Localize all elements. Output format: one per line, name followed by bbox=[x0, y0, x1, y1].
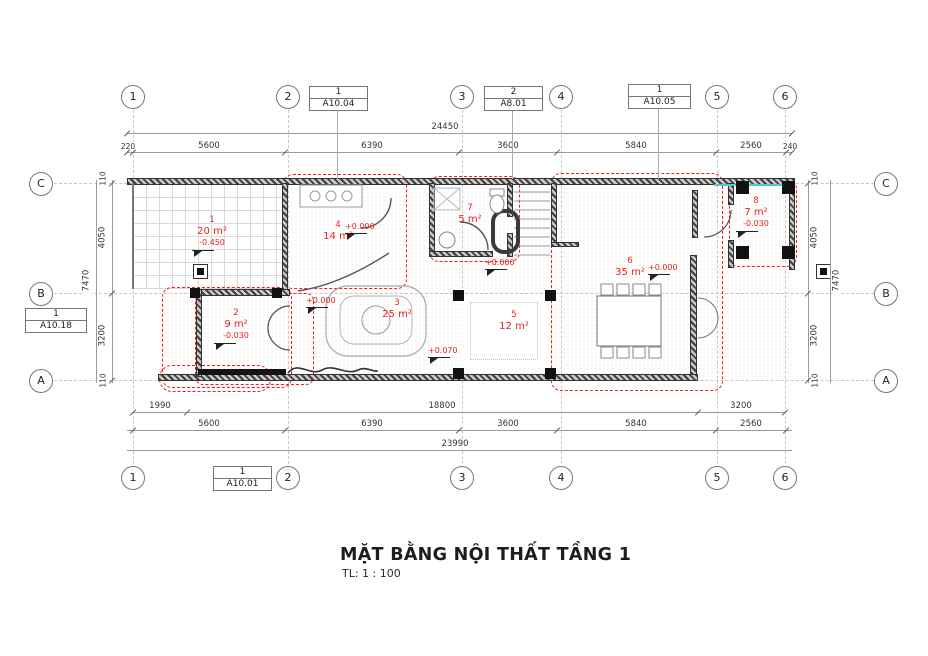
drawing-scale: TL: 1 : 100 bbox=[342, 567, 401, 580]
level-value: +0.000 bbox=[306, 296, 336, 305]
grid-bubble-bottom-1: 1 bbox=[121, 466, 145, 490]
level-flag-icon bbox=[485, 269, 507, 270]
room-area: 9 m² bbox=[206, 319, 266, 330]
level-marker-room4: +0.000 bbox=[345, 222, 375, 234]
dim-line-left-segments bbox=[112, 180, 113, 383]
dim-b1-2: 3200 bbox=[728, 402, 754, 411]
room-level: -0.030 bbox=[726, 218, 786, 229]
grid-bubble-left-A: A bbox=[29, 369, 53, 393]
room-area: 12 m² bbox=[484, 321, 544, 332]
grid-bubble-bottom-2: 2 bbox=[276, 466, 300, 490]
level-flag-icon bbox=[214, 343, 236, 344]
dim-b1-0: 1990 bbox=[147, 402, 173, 411]
grid-label: 5 bbox=[714, 471, 721, 484]
dim-line-left-total bbox=[96, 180, 97, 383]
dim-right-2: 3200 bbox=[811, 321, 820, 351]
dim-right-3: 110 bbox=[811, 366, 820, 396]
dim-left-0: 110 bbox=[99, 164, 108, 194]
grid-label: 4 bbox=[558, 471, 565, 484]
grid-label: 3 bbox=[459, 90, 466, 103]
grid-label: B bbox=[37, 287, 45, 300]
room-label-2: 2 9 m² -0.030 bbox=[206, 308, 266, 344]
room-label-8: 8 7 m² -0.030 bbox=[726, 196, 786, 232]
door-arc-hall bbox=[298, 253, 389, 291]
room-number: 5 bbox=[484, 310, 544, 321]
level-value: +0.000 bbox=[485, 258, 515, 267]
grid-bubble-top-6: 6 bbox=[773, 85, 797, 109]
callout-number: 2 bbox=[485, 87, 542, 99]
dim-line-bottom-total bbox=[127, 450, 792, 451]
door-arc-room6-a bbox=[698, 298, 718, 318]
grid-bubble-left-C: C bbox=[29, 172, 53, 196]
sink-fixture bbox=[439, 232, 455, 248]
grid-bubble-top-1: 1 bbox=[121, 85, 145, 109]
level-flag-icon bbox=[192, 250, 214, 251]
callout-sheet: A8.01 bbox=[485, 99, 542, 110]
dim-b1-1: 18800 bbox=[426, 402, 457, 411]
level-marker-stairhall: +0.000 bbox=[485, 258, 515, 270]
callout-A10-05: 1 A10.05 bbox=[628, 84, 691, 109]
room-area: 25 m² bbox=[367, 309, 427, 320]
dim-left-3: 110 bbox=[99, 366, 108, 396]
callout-number: 1 bbox=[629, 85, 690, 97]
callout-leader bbox=[658, 108, 659, 179]
level-flag-icon bbox=[648, 274, 670, 275]
door-arc-bath bbox=[460, 222, 488, 250]
grid-bubble-bottom-6: 6 bbox=[773, 466, 797, 490]
room-label-7: 7 5 m² bbox=[440, 203, 500, 225]
dim-top-2: 6390 bbox=[359, 142, 385, 151]
room-number: 3 bbox=[367, 298, 427, 309]
dim-line-bottom-row1 bbox=[133, 412, 785, 413]
grid-label: B bbox=[882, 287, 890, 300]
dim-bottom-total: 23990 bbox=[439, 440, 470, 449]
dining-table bbox=[597, 296, 661, 346]
callout-A8-01: 2 A8.01 bbox=[484, 86, 543, 111]
room-label-5: 5 12 m² bbox=[484, 310, 544, 332]
dim-right-total: 7470 bbox=[833, 266, 842, 296]
dim-b2-1: 6390 bbox=[359, 420, 385, 429]
level-flag-icon bbox=[736, 231, 758, 232]
grid-bubble-right-B: B bbox=[874, 282, 898, 306]
room-number: 8 bbox=[726, 196, 786, 207]
dim-left-2: 3200 bbox=[99, 321, 108, 351]
callout-sheet: A10.05 bbox=[629, 97, 690, 108]
grid-label: C bbox=[882, 177, 890, 190]
callout-number: 1 bbox=[310, 87, 367, 99]
grid-label: A bbox=[882, 374, 890, 387]
grid-label: 6 bbox=[782, 471, 789, 484]
grid-bubble-top-5: 5 bbox=[705, 85, 729, 109]
dim-top-5: 2560 bbox=[738, 142, 764, 151]
dim-left-1: 4050 bbox=[99, 223, 108, 253]
grid-label: 2 bbox=[285, 471, 292, 484]
room-area: 5 m² bbox=[440, 214, 500, 225]
grid-bubble-bottom-5: 5 bbox=[705, 466, 729, 490]
dim-b2-3: 5840 bbox=[623, 420, 649, 429]
callout-leader bbox=[512, 110, 513, 179]
grid-label: 4 bbox=[558, 90, 565, 103]
level-marker-room6: +0.000 bbox=[648, 263, 678, 275]
level-flag-icon bbox=[428, 357, 450, 358]
callout-leader bbox=[337, 110, 338, 179]
drawing-title: MẶT BẰNG NỘI THẤT TẦNG 1 bbox=[340, 545, 631, 565]
garden-edge-wave bbox=[288, 368, 378, 373]
callout-sheet: A10.01 bbox=[214, 479, 271, 490]
callout-A10-18: 1 A10.18 bbox=[25, 308, 87, 333]
grid-bubble-left-B: B bbox=[29, 282, 53, 306]
room-area: 20 m² bbox=[182, 226, 242, 237]
room-level: -0.450 bbox=[182, 237, 242, 248]
room-number: 2 bbox=[206, 308, 266, 319]
callout-sheet: A10.04 bbox=[310, 99, 367, 110]
level-marker-room3-bottom: +0.070 bbox=[428, 346, 458, 358]
grid-bubble-right-A: A bbox=[874, 369, 898, 393]
level-value: +0.000 bbox=[345, 222, 375, 231]
grid-label: A bbox=[37, 374, 45, 387]
dim-line-top-total bbox=[127, 133, 792, 134]
dim-top-4: 5840 bbox=[623, 142, 649, 151]
door-arc-room2-a bbox=[268, 306, 290, 328]
grid-label: 3 bbox=[459, 471, 466, 484]
callout-A10-04: 1 A10.04 bbox=[309, 86, 368, 111]
grid-bubble-top-4: 4 bbox=[549, 85, 573, 109]
door-arc-room6-b bbox=[698, 318, 718, 338]
dim-top-total: 24450 bbox=[429, 123, 460, 132]
room-level: -0.030 bbox=[206, 330, 266, 341]
dim-right-1: 4050 bbox=[811, 223, 820, 253]
room-area: 7 m² bbox=[726, 207, 786, 218]
dim-right-0: 110 bbox=[811, 164, 820, 194]
grid-label: C bbox=[37, 177, 45, 190]
dim-top-6: 240 bbox=[781, 142, 799, 151]
floor-plan-sheet: 1 20 m² -0.450 2 9 m² -0.030 3 25 m² 4 1… bbox=[0, 0, 928, 656]
grid-bubble-top-3: 3 bbox=[450, 85, 474, 109]
level-flag-icon bbox=[306, 307, 328, 308]
callout-sheet: A10.18 bbox=[26, 321, 86, 332]
dim-b2-0: 5600 bbox=[196, 420, 222, 429]
sideboard-room4 bbox=[300, 185, 362, 207]
callout-number: 1 bbox=[214, 467, 271, 479]
callout-number: 1 bbox=[26, 309, 86, 321]
grid-label: 1 bbox=[130, 471, 137, 484]
dim-left-total: 7470 bbox=[83, 266, 92, 296]
level-flag-icon bbox=[345, 233, 367, 234]
dim-b2-2: 3600 bbox=[495, 420, 521, 429]
level-marker-room3-left: +0.000 bbox=[306, 296, 336, 308]
room-label-3: 3 25 m² bbox=[367, 298, 427, 320]
grid-label: 1 bbox=[130, 90, 137, 103]
dim-line-right-segments bbox=[808, 180, 809, 383]
grid-bubble-right-C: C bbox=[874, 172, 898, 196]
level-value: +0.070 bbox=[428, 346, 458, 355]
level-value: +0.000 bbox=[648, 263, 678, 272]
door-arc-room2-b bbox=[268, 328, 290, 350]
grid-bubble-bottom-4: 4 bbox=[549, 466, 573, 490]
callout-A10-01: 1 A10.01 bbox=[213, 466, 272, 491]
grid-bubble-top-2: 2 bbox=[276, 85, 300, 109]
room-number: 1 bbox=[182, 215, 242, 226]
grid-bubble-bottom-3: 3 bbox=[450, 466, 474, 490]
grid-label: 5 bbox=[714, 90, 721, 103]
room-number: 7 bbox=[440, 203, 500, 214]
grid-label: 6 bbox=[782, 90, 789, 103]
grid-label: 2 bbox=[285, 90, 292, 103]
dim-top-3: 3600 bbox=[495, 142, 521, 151]
dim-b2-4: 2560 bbox=[738, 420, 764, 429]
room-label-1: 1 20 m² -0.450 bbox=[182, 215, 242, 251]
dim-top-1: 5600 bbox=[196, 142, 222, 151]
